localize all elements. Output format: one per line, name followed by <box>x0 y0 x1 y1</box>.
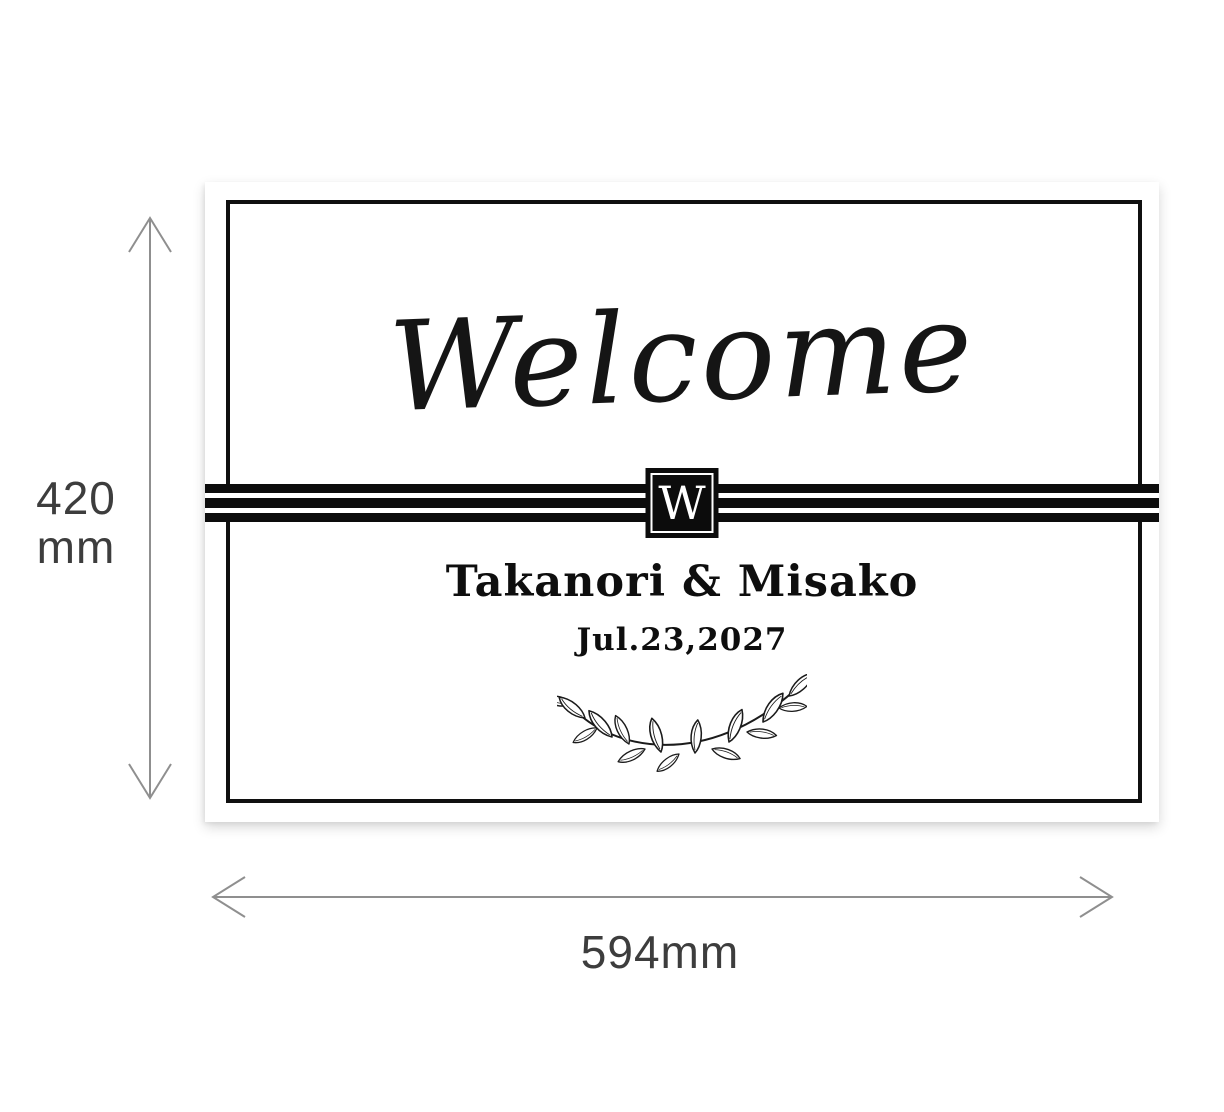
couple-names: Takanori & Misako <box>205 556 1159 608</box>
width-dimension-arrow <box>205 869 1120 925</box>
welcome-board: Welcome W Takanori & Misako Jul.23,2027 <box>205 182 1159 822</box>
monogram-badge: W <box>646 468 719 538</box>
laurel-branch-icon <box>557 674 807 774</box>
height-unit: mm <box>8 523 144 572</box>
width-dimension-label: 594mm <box>450 928 870 977</box>
height-dimension-label: 420 mm <box>8 474 144 572</box>
wedding-date: Jul.23,2027 <box>205 622 1159 658</box>
product-dimension-mockup: Welcome W Takanori & Misako Jul.23,2027 <box>0 0 1224 1112</box>
height-value: 420 <box>8 474 144 523</box>
welcome-title: Welcome <box>202 251 1162 464</box>
monogram-letter: W <box>658 480 705 526</box>
